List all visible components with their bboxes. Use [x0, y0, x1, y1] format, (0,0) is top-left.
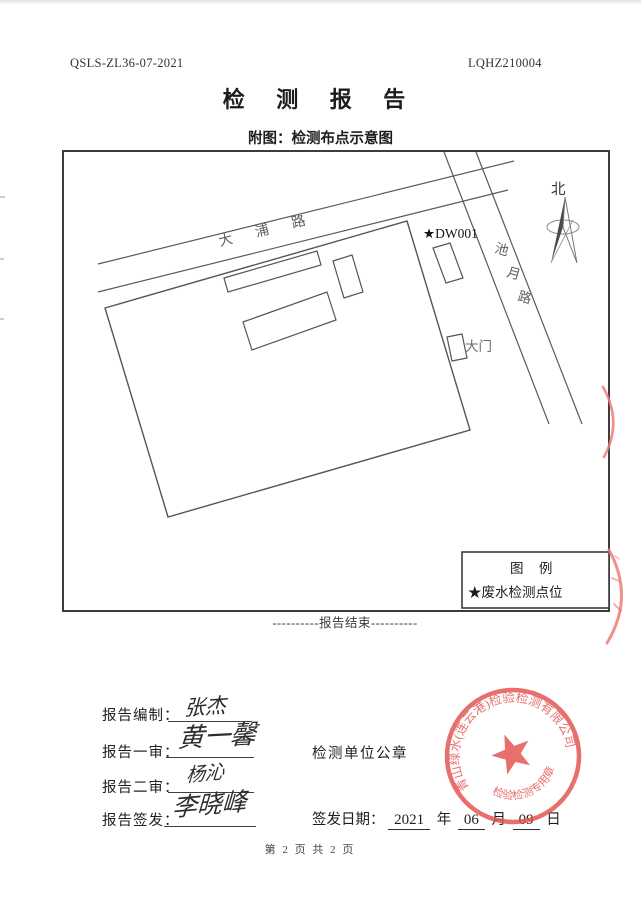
- svg-text:池: 池: [493, 240, 510, 258]
- scan-speck: [0, 258, 4, 260]
- seal-star-icon: [486, 727, 537, 777]
- legend-item-wastewater: ★废水检测点位: [468, 585, 563, 600]
- north-label: 北: [551, 181, 566, 198]
- signature-prepared-by: 张杰: [184, 695, 227, 719]
- first-review-label: 报告一审：: [102, 741, 180, 762]
- report-number: LQHZ210004: [468, 56, 542, 71]
- page-title: 检 测 报 告: [0, 82, 641, 114]
- svg-text:路: 路: [516, 288, 534, 306]
- sampling-point-label: ★DW001: [423, 226, 478, 241]
- north-compass-icon: 北: [547, 181, 579, 263]
- report-end-marker: ----------报告结束----------: [240, 612, 450, 631]
- figure-subtitle: 附图：检测布点示意图: [0, 127, 641, 148]
- scan-edge-shadow: [0, 0, 641, 5]
- signature-first-review: 黄一馨: [177, 722, 257, 752]
- signature-line: [166, 757, 254, 758]
- dapu-road-label: 大 浦 路: [217, 210, 317, 249]
- signature-line: [164, 826, 256, 827]
- issue-date-year: 2021: [388, 812, 430, 830]
- legend-title: 图 例: [510, 561, 558, 576]
- gate-label: 大门: [465, 339, 492, 354]
- signature-second-review: 杨沁: [185, 763, 224, 786]
- scan-speck: [0, 196, 5, 198]
- seal-company-name: 青山绿水(连云港)检验检测有限公司: [438, 681, 579, 794]
- building-sampling: [433, 243, 463, 283]
- stamp-edge-marks: [585, 375, 641, 665]
- scan-speck: [0, 318, 4, 320]
- second-review-label: 报告二审：: [102, 776, 180, 797]
- issue-date-label: 签发日期：: [312, 812, 385, 828]
- svg-text:月: 月: [505, 264, 522, 282]
- svg-text:青山绿水(连云港)检验检测有限公司: 青山绿水(连云港)检验检测有限公司: [438, 681, 579, 794]
- signature-issued-by: 李晓峰: [171, 789, 247, 821]
- official-seal-stamp: 青山绿水(连云港)检验检测有限公司 检验检测专用章: [438, 681, 588, 831]
- seal-stamp-type: 检验检测专用章: [487, 760, 564, 812]
- sampling-point-diagram: 大 浦 路 池 月 路 ★DW001 大门 北 图 例 ★废水检测点位: [62, 150, 610, 612]
- scanned-report-page: { "header": { "code_left": "QSLS-ZL36-07…: [0, 0, 641, 901]
- svg-text:检验检测专用章: 检验检测专用章: [487, 760, 564, 812]
- document-code-left: QSLS-ZL36-07-2021: [70, 56, 183, 71]
- gate-structure: [447, 334, 467, 361]
- page-number: 第 2 页 共 2 页: [230, 841, 390, 857]
- seal-caption: 检测单位公章: [312, 742, 408, 763]
